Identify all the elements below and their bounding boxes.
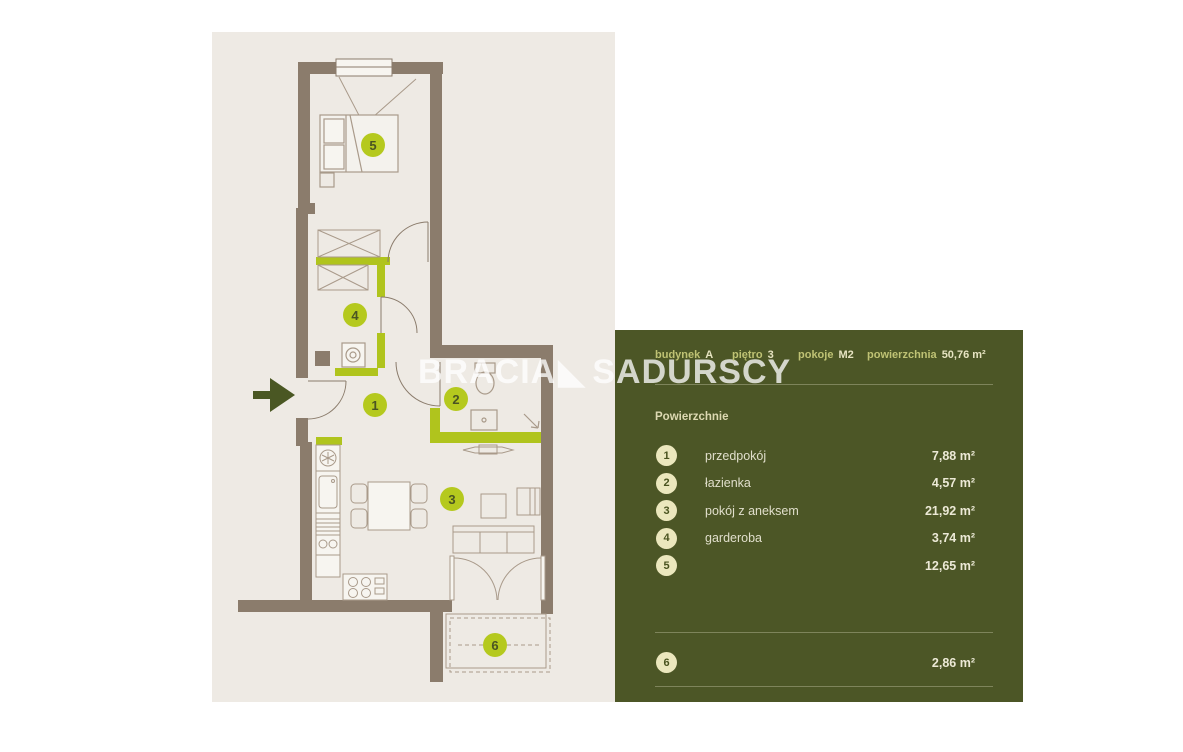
room-name: pokój z aneksem: [705, 504, 799, 518]
area-label: powierzchnia: [867, 349, 937, 361]
plan-badge-1: 1: [363, 393, 387, 417]
plan-badge-6: 6: [483, 633, 507, 657]
building-label: budynek: [655, 349, 700, 361]
room-area: 3,74 m²: [932, 531, 975, 545]
list-item: 6 2,86 m²: [615, 649, 1023, 677]
header-area: powierzchnia50,76 m²: [867, 349, 986, 361]
room-area: 12,65 m²: [925, 559, 975, 573]
room-area: 4,57 m²: [932, 476, 975, 490]
radiator: [463, 445, 513, 454]
plan-badge-5: 5: [361, 133, 385, 157]
balcony-doors: [450, 556, 545, 600]
rooms-value: M2: [838, 349, 853, 361]
legend-badge-5: 5: [656, 555, 677, 576]
list-item: 1 przedpokój 7,88 m²: [615, 442, 1023, 470]
listing-floorplan-page: 1 2 3 4 5 6 budynekA piętro3 pokojeM2 po…: [0, 0, 1183, 752]
floor-label: piętro: [732, 349, 763, 361]
area-value: 50,76 m²: [942, 349, 986, 361]
building-value: A: [705, 349, 713, 361]
list-item: 4 garderoba 3,74 m²: [615, 525, 1023, 553]
plan-badge-3: 3: [440, 487, 464, 511]
rooms-label: pokoje: [798, 349, 833, 361]
entry-door: [308, 381, 346, 419]
list-item: 3 pokój z aneksem 21,92 m²: [615, 497, 1023, 525]
living-room-furniture: [453, 488, 540, 553]
plan-badge-4: 4: [343, 303, 367, 327]
list-item: 2 łazienka 4,57 m²: [615, 470, 1023, 498]
room-name: łazienka: [705, 476, 751, 490]
header-floor: piętro3: [732, 349, 774, 361]
legend-badge-6: 6: [656, 652, 677, 673]
room-area: 7,88 m²: [932, 449, 975, 463]
areas-section-title: Powierzchnie: [655, 411, 729, 423]
bottom-divider: [655, 686, 993, 687]
room-area: 21,92 m²: [925, 504, 975, 518]
logo-triangle-icon: ◣: [558, 352, 585, 392]
watermark-part1: BRACIA: [418, 353, 556, 391]
header-building: budynekA: [655, 349, 713, 361]
header-rooms: pokojeM2: [798, 349, 854, 361]
entry-arrow-icon: [253, 378, 295, 412]
bed: [320, 115, 398, 187]
room-name: przedpokój: [705, 449, 766, 463]
legend-badge-4: 4: [656, 528, 677, 549]
areas-list: 1 przedpokój 7,88 m² 2 łazienka 4,57 m² …: [615, 442, 1023, 580]
room-area: 2,86 m²: [932, 656, 975, 670]
legend-badge-2: 2: [656, 473, 677, 494]
legend-badge-3: 3: [656, 500, 677, 521]
room-name: garderoba: [705, 531, 762, 545]
kitchen-counter: [316, 445, 340, 577]
legend-badge-1: 1: [656, 445, 677, 466]
list-divider: [655, 632, 993, 633]
floor-value: 3: [768, 349, 774, 361]
washing-machine: [342, 343, 365, 367]
dining-set: [351, 482, 427, 530]
list-item: 5 12,65 m²: [615, 552, 1023, 580]
stove: [343, 574, 387, 600]
